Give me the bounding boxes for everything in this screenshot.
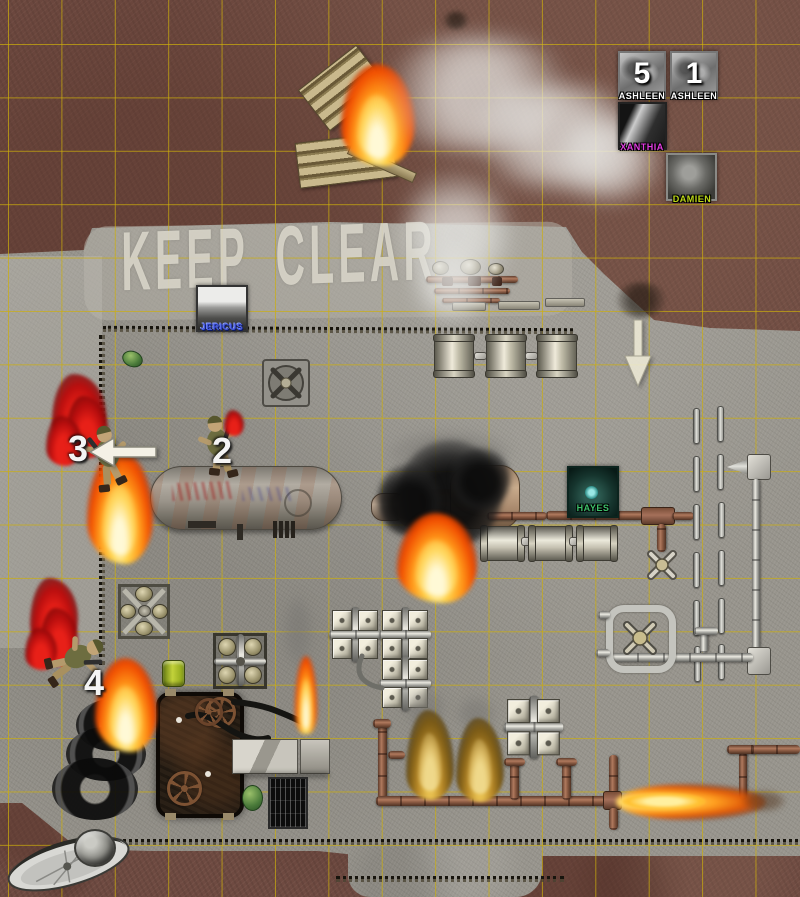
pipe-segment [693, 552, 700, 588]
vtt-battle-map[interactable]: KEEP CLEAR [0, 0, 800, 897]
valve-top [135, 621, 153, 636]
valve-top [135, 586, 153, 602]
tank-pipe-stub [273, 521, 277, 538]
tank-pipe-stub [291, 521, 295, 538]
left-arrow[interactable] [90, 436, 158, 468]
valve-crate [408, 638, 428, 659]
compressor-drum [486, 335, 526, 377]
riser-flange [556, 758, 577, 766]
concrete-ramp [232, 739, 298, 774]
rusty-riser [510, 763, 519, 800]
valve-top [244, 666, 262, 684]
compressor-drum [537, 335, 577, 377]
hose-valve-wheel [195, 698, 223, 726]
manifold-hub [236, 657, 245, 666]
valve-crate [537, 699, 560, 723]
marker-number-4[interactable]: 4 [74, 662, 114, 704]
flare-tail-smoke [742, 790, 786, 812]
pipe-segment [718, 598, 725, 634]
metal-plate [498, 301, 540, 310]
valve-manifold-quad [118, 584, 170, 639]
platform-tab [165, 689, 176, 696]
dangling-hose [340, 652, 395, 696]
rusty-main-pipe [376, 796, 618, 806]
valve-crate [358, 610, 378, 631]
hayes-mask-lens [585, 486, 598, 499]
scorch-mark [616, 282, 666, 318]
rusty-pipe [672, 512, 694, 520]
floor-grating [268, 777, 308, 829]
tank-leg [237, 524, 243, 540]
riser-flange [504, 758, 525, 766]
silver-drum [577, 526, 617, 561]
rusty-branch [388, 751, 405, 759]
token-label-ashleen-b: ASHLEEN [663, 91, 725, 101]
loop-cross-valve [619, 617, 661, 659]
concrete-ramp-block [300, 739, 330, 774]
keep-clear-ground-text: KEEP CLEAR [121, 201, 437, 311]
valve-crate [382, 610, 402, 631]
pipe-segment [717, 406, 724, 442]
pipe-segment [693, 456, 700, 492]
tire-coil [52, 758, 138, 820]
token-label-xanthia: XANTHIA [610, 142, 674, 152]
token-label-damien: DAMIEN [663, 194, 721, 204]
valve-crate [408, 610, 428, 631]
smoke-plume [414, 248, 490, 324]
concrete-tongue [348, 845, 542, 897]
platform-tab [223, 813, 234, 820]
satellite-dish [2, 828, 134, 897]
valve-top [120, 604, 136, 619]
valve-manifold-square [213, 633, 267, 689]
scorch-mark [443, 11, 469, 30]
valve-top [218, 666, 236, 684]
metal-plate [545, 298, 585, 307]
melon-object [242, 785, 263, 811]
rusty-riser [378, 725, 387, 799]
compressor-drum [434, 335, 474, 377]
marker-number-2[interactable]: 2 [202, 430, 242, 472]
platform-tab [165, 813, 176, 820]
valve-top [244, 638, 262, 656]
tank-pipe-stub [279, 521, 283, 538]
rusty-riser [609, 808, 618, 830]
valve-crate [332, 610, 352, 631]
down-arrow[interactable] [623, 318, 653, 390]
loop-stub [598, 611, 610, 619]
valve-crate [537, 731, 560, 755]
black-smoke [452, 448, 510, 510]
valve-crate [507, 731, 530, 755]
loop-stub [596, 649, 610, 657]
horizontal-flare-core [622, 793, 706, 810]
t-fitting-bar [694, 627, 718, 635]
pipe-segment [717, 454, 724, 490]
token-count-ashleen-a: 5 [618, 57, 666, 91]
cross-valve-wheel [644, 547, 680, 583]
crate-cluster [507, 699, 560, 755]
pipe-segment [718, 502, 725, 538]
pipe-junction [641, 507, 675, 525]
manifold-hub [138, 605, 151, 617]
pipe-segment [693, 504, 700, 540]
manhole-cover [74, 829, 116, 867]
pipe-segment [718, 644, 725, 680]
valve-crate [408, 659, 428, 680]
rusty-elbow [373, 719, 391, 728]
token-label-jericus: JERICUS [190, 322, 254, 332]
rivet-dot [205, 771, 211, 777]
tank-pipe-stub [285, 521, 289, 538]
silver-standpipe [752, 479, 760, 651]
valve-wheel [167, 771, 202, 806]
valve-top [218, 638, 236, 656]
token-label-hayes: HAYES [558, 503, 628, 513]
barbed-wire [100, 839, 798, 845]
tank-leg [188, 521, 216, 528]
rusty-pipe [752, 745, 800, 754]
token-count-ashleen-b: 1 [670, 57, 718, 91]
nozzle-box [747, 454, 771, 480]
barbed-wire [336, 876, 564, 882]
green-barrel [162, 660, 185, 687]
tank-graffiti [242, 487, 294, 501]
pipe-segment [693, 408, 700, 444]
valve-crate [507, 699, 530, 723]
rusty-riser [562, 763, 571, 800]
pipe-segment [718, 550, 725, 586]
silver-drum [529, 526, 572, 561]
round-valve-plate [262, 359, 310, 407]
valve-top [152, 604, 168, 619]
